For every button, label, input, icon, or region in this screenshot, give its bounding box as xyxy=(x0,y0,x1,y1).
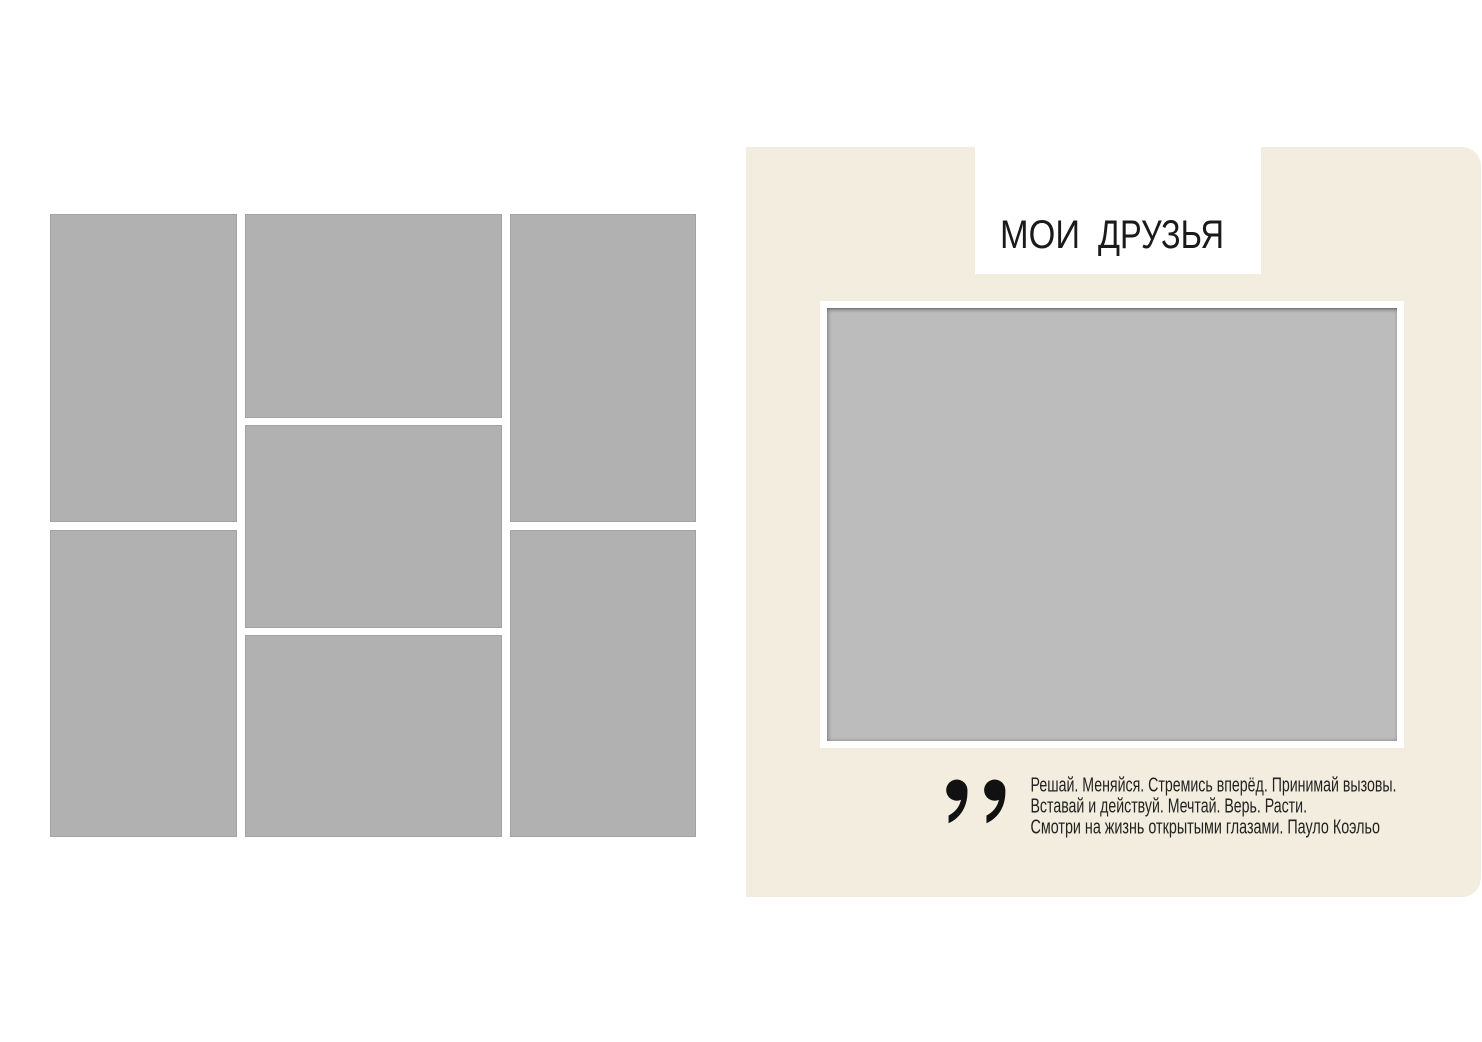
svg-text:Смотри на жизнь открытыми глаз: Смотри на жизнь открытыми глазами. Пауло… xyxy=(1031,817,1381,839)
svg-text:Вставай и действуй. Мечтай. Ве: Вставай и действуй. Мечтай. Верь. Расти. xyxy=(1031,796,1308,818)
svg-text:Решай. Меняйся. Стремись вперё: Решай. Меняйся. Стремись вперёд. Принима… xyxy=(1031,775,1397,797)
